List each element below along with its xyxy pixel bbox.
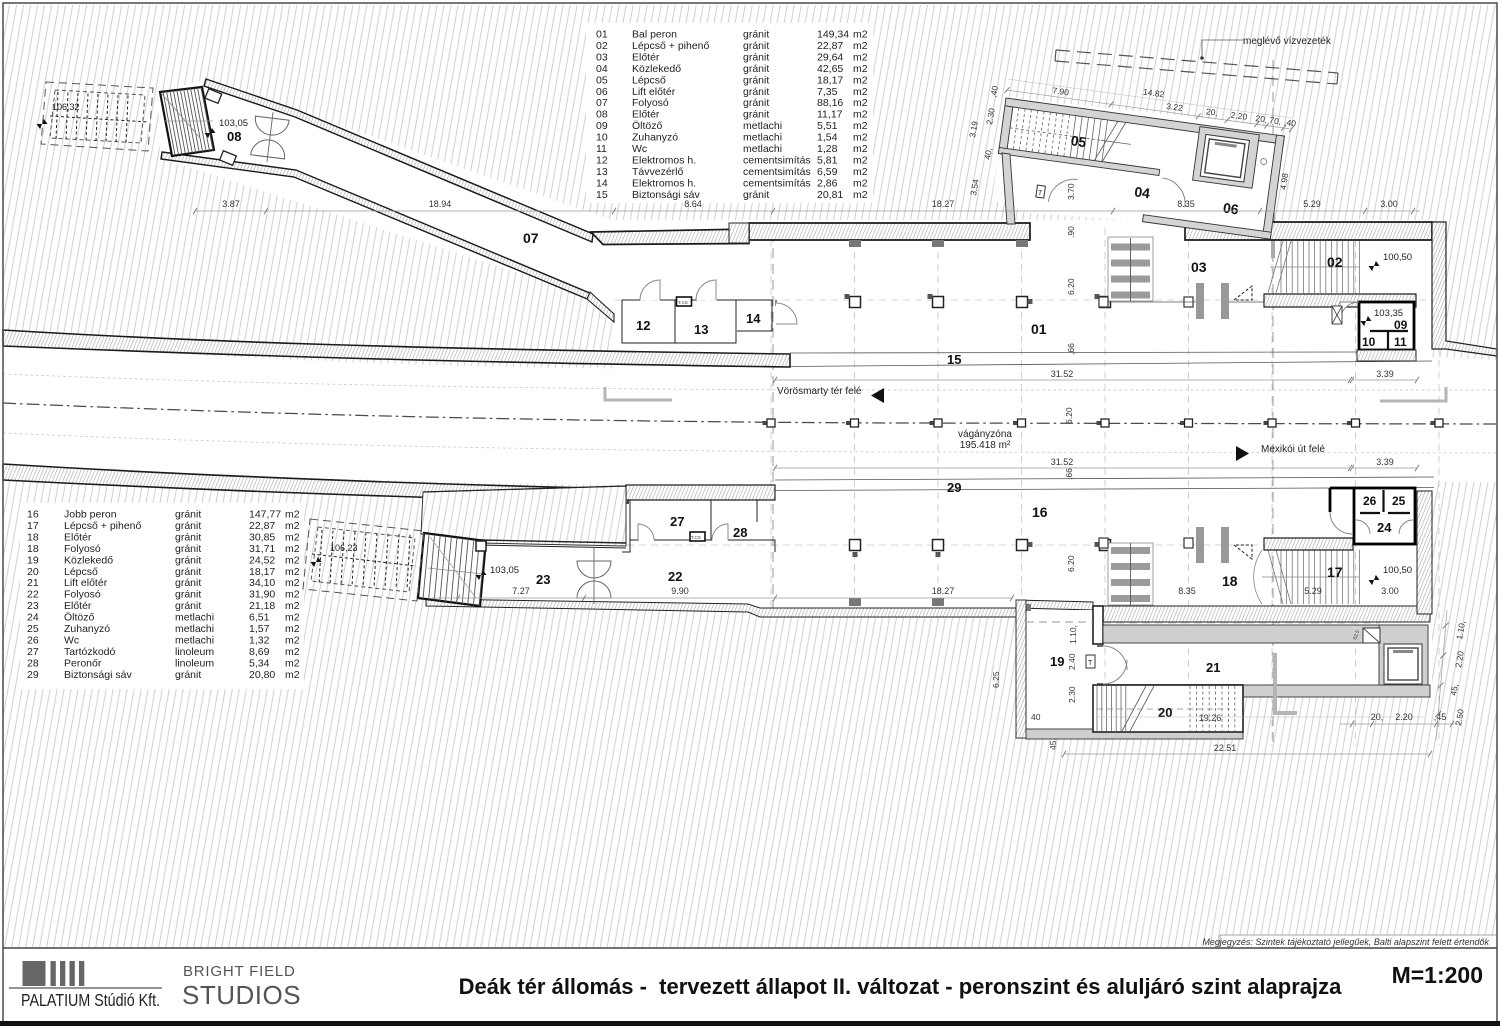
svg-text:m2: m2 (853, 120, 868, 132)
svg-text:103,05: 103,05 (490, 565, 519, 576)
svg-text:gránit: gránit (175, 669, 201, 681)
svg-text:13: 13 (596, 166, 608, 178)
svg-text:24: 24 (27, 612, 39, 624)
svg-text:gránit: gránit (175, 531, 201, 543)
svg-text:Biztonsági sáv: Biztonsági sáv (64, 669, 132, 681)
svg-text:Lépcső: Lépcső (632, 74, 666, 86)
svg-text:gránit: gránit (743, 109, 769, 121)
svg-text:21,18: 21,18 (249, 600, 275, 612)
svg-text:,40: ,40 (1284, 117, 1297, 129)
svg-text:06: 06 (596, 86, 608, 98)
svg-text:18,17: 18,17 (249, 566, 275, 578)
svg-text:,40: ,40 (988, 85, 1000, 99)
svg-text:106,32: 106,32 (52, 102, 80, 112)
svg-text:09: 09 (1394, 318, 1408, 332)
svg-text:5.29: 5.29 (1303, 199, 1321, 209)
svg-text:6.20: 6.20 (1066, 555, 1076, 572)
svg-text:6.20: 6.20 (1064, 407, 1074, 424)
svg-text:1,32: 1,32 (249, 635, 270, 647)
svg-text:05: 05 (1070, 132, 1088, 150)
svg-text:cementsimítás: cementsimítás (743, 154, 811, 166)
svg-text:22,87: 22,87 (817, 40, 843, 52)
svg-text:T: T (1088, 660, 1093, 667)
svg-text:88,16: 88,16 (817, 97, 843, 109)
svg-text:5,34: 5,34 (249, 657, 270, 669)
svg-text:195.418 m²: 195.418 m² (960, 440, 1011, 451)
svg-text:gránit: gránit (175, 520, 201, 532)
svg-text:gránit: gránit (743, 63, 769, 75)
svg-text:34,10: 34,10 (249, 577, 275, 589)
svg-text:07: 07 (523, 230, 539, 246)
svg-text:30,85: 30,85 (249, 531, 275, 543)
svg-text:28: 28 (27, 657, 39, 669)
svg-text:m2: m2 (853, 189, 868, 201)
svg-text:T.CS: T.CS (678, 300, 688, 305)
svg-text:11: 11 (596, 143, 607, 155)
svg-text:9.90: 9.90 (671, 586, 689, 596)
svg-text:gránit: gránit (743, 97, 769, 109)
svg-text:15: 15 (596, 189, 608, 201)
svg-text:m2: m2 (285, 531, 300, 543)
svg-text:Zuhanyzó: Zuhanyzó (64, 623, 110, 635)
svg-text:27: 27 (670, 514, 684, 529)
svg-text:PALATIUM Stúdió Kft.: PALATIUM Stúdió Kft. (21, 991, 160, 1011)
svg-text:Jobb peron: Jobb peron (64, 509, 117, 521)
svg-text:,66: ,66 (1064, 468, 1074, 480)
svg-text:23: 23 (27, 600, 39, 612)
svg-text:Közlekedő: Közlekedő (632, 63, 681, 75)
svg-text:Deák tér állomás - tervezett: Deák tér állomás - tervezett állapot II.… (459, 974, 1342, 999)
svg-text:,66: ,66 (1066, 343, 1076, 355)
svg-text:18: 18 (27, 531, 39, 543)
svg-text:20,: 20, (1371, 712, 1384, 722)
svg-text:28: 28 (733, 525, 747, 540)
svg-text:103,05: 103,05 (219, 118, 248, 129)
svg-text:m2: m2 (285, 623, 300, 635)
svg-text:gránit: gránit (743, 40, 769, 52)
svg-text:21: 21 (27, 577, 39, 589)
svg-text:gránit: gránit (175, 600, 201, 612)
svg-text:21: 21 (1206, 660, 1220, 675)
svg-text:14: 14 (596, 177, 608, 189)
svg-text:metlachi: metlachi (743, 120, 782, 132)
svg-text:19: 19 (27, 554, 39, 566)
svg-text:Zuhanyzó: Zuhanyzó (632, 132, 678, 144)
svg-text:26: 26 (27, 635, 39, 647)
svg-text:2.20: 2.20 (1395, 712, 1413, 722)
svg-text:20,80: 20,80 (249, 669, 275, 681)
svg-text:70,: 70, (1269, 115, 1282, 127)
svg-text:20,: 20, (1205, 106, 1218, 118)
svg-text:m2: m2 (285, 612, 300, 624)
svg-text:gránit: gránit (175, 509, 201, 521)
svg-text:31.52: 31.52 (1051, 369, 1074, 379)
svg-text:100,50: 100,50 (1383, 252, 1412, 263)
svg-text:Lift előtér: Lift előtér (632, 86, 676, 98)
svg-text:Megjegyzés: Szintek tájékoztat: Megjegyzés: Szintek tájékoztató jellegűe… (1202, 937, 1489, 947)
svg-text:cementsimítás: cementsimítás (743, 177, 811, 189)
svg-text:Közlekedő: Közlekedő (64, 554, 113, 566)
svg-text:gránit: gránit (743, 51, 769, 63)
svg-text:m2: m2 (285, 509, 300, 521)
svg-text:metlachi: metlachi (175, 612, 214, 624)
svg-text:24: 24 (1377, 520, 1392, 535)
svg-text:8.35: 8.35 (1177, 199, 1195, 209)
svg-text:31,71: 31,71 (249, 543, 275, 555)
svg-text:5,81: 5,81 (817, 154, 838, 166)
svg-text:6.20: 6.20 (1066, 278, 1076, 295)
svg-text:40: 40 (1031, 712, 1041, 722)
svg-text:3.39: 3.39 (1376, 457, 1394, 467)
svg-text:metlachi: metlachi (743, 132, 782, 144)
svg-text:7.27: 7.27 (512, 586, 530, 596)
svg-text:3.00: 3.00 (1380, 199, 1398, 209)
svg-text:Mexikói út felé: Mexikói út felé (1261, 444, 1325, 455)
svg-text:106,23: 106,23 (330, 543, 358, 553)
svg-text:m2: m2 (285, 543, 300, 555)
svg-text:gránit: gránit (743, 74, 769, 86)
svg-text:2.40: 2.40 (1067, 653, 1077, 670)
svg-text:07: 07 (596, 97, 608, 109)
svg-text:m2: m2 (285, 657, 300, 669)
svg-text:cementsimítás: cementsimítás (743, 166, 811, 178)
svg-text:Lépcső + pihenő: Lépcső + pihenő (632, 40, 710, 52)
svg-text:m2: m2 (853, 177, 868, 189)
svg-text:.90: .90 (1066, 226, 1076, 238)
svg-text:42,65: 42,65 (817, 63, 843, 75)
svg-text:m2: m2 (285, 635, 300, 647)
svg-text:m2: m2 (853, 143, 868, 155)
svg-text:3.70: 3.70 (1066, 183, 1076, 200)
svg-text:8.35: 8.35 (1178, 586, 1196, 596)
svg-text:Folyosó: Folyosó (632, 97, 669, 109)
svg-text:m2: m2 (285, 554, 300, 566)
svg-text:gránit: gránit (743, 29, 769, 41)
svg-text:m2: m2 (853, 86, 868, 98)
svg-text:m2: m2 (285, 566, 300, 578)
svg-text:Peronőr: Peronőr (64, 657, 102, 669)
svg-text:27: 27 (27, 646, 39, 658)
svg-text:22.51: 22.51 (1214, 743, 1237, 753)
svg-text:29: 29 (947, 480, 961, 495)
svg-text:11: 11 (1394, 335, 1407, 349)
svg-text:06: 06 (1222, 200, 1240, 218)
svg-text:gránit: gránit (175, 566, 201, 578)
svg-text:T.CS: T.CS (691, 535, 701, 540)
svg-text:STUDIOS: STUDIOS (182, 980, 301, 1010)
svg-text:4.98: 4.98 (1278, 172, 1290, 190)
svg-text:linoleum: linoleum (175, 646, 214, 658)
svg-text:29,64: 29,64 (817, 51, 843, 63)
svg-text:1.10,: 1.10, (1068, 625, 1078, 644)
svg-text:m2: m2 (853, 154, 868, 166)
svg-text:Folyosó: Folyosó (64, 589, 101, 601)
svg-text:Öltöző: Öltöző (64, 612, 95, 624)
svg-text:01: 01 (596, 29, 608, 41)
svg-text:6,51: 6,51 (249, 612, 270, 624)
svg-text:5,51: 5,51 (817, 120, 838, 132)
svg-text:12: 12 (636, 318, 650, 333)
svg-text:m2: m2 (853, 109, 868, 121)
svg-text:17: 17 (1327, 564, 1343, 580)
svg-text:19.26: 19.26 (1199, 713, 1222, 723)
svg-text:Előtér: Előtér (632, 51, 660, 63)
svg-text:m2: m2 (853, 132, 868, 144)
svg-text:19: 19 (1050, 654, 1064, 669)
svg-text:Wc: Wc (632, 143, 647, 155)
svg-text:m2: m2 (853, 40, 868, 52)
svg-text:12: 12 (596, 154, 608, 166)
svg-text:m2: m2 (853, 166, 868, 178)
svg-text:gránit: gránit (175, 554, 201, 566)
svg-text:gránit: gránit (175, 589, 201, 601)
svg-text:m2: m2 (853, 97, 868, 109)
svg-text:gránit: gránit (175, 577, 201, 589)
svg-text:13: 13 (694, 322, 708, 337)
svg-text:7,35: 7,35 (817, 86, 838, 98)
svg-text:20,: 20, (1255, 113, 1268, 125)
svg-text:Wc: Wc (64, 635, 79, 647)
svg-text:31.52: 31.52 (1051, 457, 1074, 467)
svg-text:5.29: 5.29 (1304, 586, 1322, 596)
svg-text:Elektromos h.: Elektromos h. (632, 154, 696, 166)
svg-text:18: 18 (1222, 573, 1238, 589)
svg-text:m2: m2 (285, 577, 300, 589)
svg-text:45,: 45, (1048, 738, 1058, 750)
svg-text:Előtér: Előtér (64, 531, 92, 543)
svg-text:3.00: 3.00 (1381, 586, 1399, 596)
svg-text:Előtér: Előtér (632, 109, 660, 121)
svg-text:linoleum: linoleum (175, 657, 214, 669)
svg-text:metlachi: metlachi (175, 635, 214, 647)
svg-text:1,54: 1,54 (817, 132, 838, 144)
svg-text:metlachi: metlachi (175, 623, 214, 635)
svg-text:Távvezérlő: Távvezérlő (632, 166, 684, 178)
svg-text:m2: m2 (853, 63, 868, 75)
svg-text:18,17: 18,17 (817, 74, 843, 86)
svg-text:02: 02 (1327, 254, 1343, 270)
svg-text:29: 29 (27, 669, 39, 681)
svg-text:m2: m2 (285, 669, 300, 681)
svg-text:10: 10 (596, 132, 608, 144)
svg-text:vágányzóna: vágányzóna (958, 429, 1012, 440)
svg-text:03: 03 (596, 51, 608, 63)
svg-text:25: 25 (27, 623, 39, 635)
svg-text:22: 22 (668, 569, 682, 584)
svg-text:m2: m2 (285, 646, 300, 658)
svg-text:Biztonsági sáv: Biztonsági sáv (632, 189, 700, 201)
svg-text:16: 16 (1032, 504, 1048, 520)
svg-text:20,81: 20,81 (817, 189, 843, 201)
svg-text:18.27: 18.27 (932, 199, 955, 209)
svg-text:02: 02 (596, 40, 608, 52)
svg-text:16: 16 (27, 509, 39, 521)
svg-text:metlachi: metlachi (743, 143, 782, 155)
svg-text:3.39: 3.39 (1376, 369, 1394, 379)
svg-text:23: 23 (536, 572, 550, 587)
svg-text:gránit: gránit (175, 543, 201, 555)
svg-text:14: 14 (746, 311, 761, 326)
svg-text:20: 20 (1158, 705, 1172, 720)
svg-text:11,17: 11,17 (817, 109, 843, 121)
svg-text:05: 05 (596, 74, 608, 86)
svg-text:gránit: gránit (743, 189, 769, 201)
svg-text:m2: m2 (285, 589, 300, 601)
svg-text:Lift előtér: Lift előtér (64, 577, 108, 589)
svg-text:04: 04 (1133, 183, 1151, 201)
svg-text:2.30: 2.30 (1067, 686, 1077, 703)
svg-text:04: 04 (596, 63, 608, 75)
svg-text:147,77: 147,77 (249, 509, 281, 521)
svg-text:01: 01 (1031, 321, 1047, 337)
svg-text:20: 20 (27, 566, 39, 578)
svg-text:17: 17 (27, 520, 39, 532)
svg-text:6,59: 6,59 (817, 166, 838, 178)
svg-text:31,90: 31,90 (249, 589, 275, 601)
svg-text:08: 08 (596, 109, 608, 121)
svg-text:gránit: gránit (743, 86, 769, 98)
svg-text:6.25: 6.25 (991, 671, 1001, 688)
svg-text:m2: m2 (285, 600, 300, 612)
svg-text:18.94: 18.94 (429, 199, 452, 209)
svg-text:m2: m2 (853, 51, 868, 63)
svg-text:25: 25 (1392, 494, 1406, 508)
svg-text:18: 18 (27, 543, 39, 555)
svg-text:100,50: 100,50 (1383, 565, 1412, 576)
svg-text:22,87: 22,87 (249, 520, 275, 532)
svg-text:22: 22 (27, 589, 39, 601)
svg-text:3.87: 3.87 (222, 199, 240, 209)
svg-text:Folyosó: Folyosó (64, 543, 101, 555)
svg-text:m2: m2 (285, 520, 300, 532)
svg-text:Öltöző: Öltöző (632, 120, 663, 132)
svg-text:149,34: 149,34 (817, 29, 849, 41)
svg-text:Lépcső + pihenő: Lépcső + pihenő (64, 520, 142, 532)
svg-text:03: 03 (1191, 259, 1207, 275)
svg-text:8,69: 8,69 (249, 646, 270, 658)
svg-text:09: 09 (596, 120, 608, 132)
svg-text:Bal peron: Bal peron (632, 29, 677, 41)
svg-text:meglévő vízvezeték: meglévő vízvezeték (1243, 36, 1332, 47)
svg-text:Elektromos h.: Elektromos h. (632, 177, 696, 189)
svg-text:Előtér: Előtér (64, 600, 92, 612)
svg-text:1,28: 1,28 (817, 143, 838, 155)
svg-text:18.27: 18.27 (932, 586, 955, 596)
svg-text:M=1:200: M=1:200 (1392, 962, 1483, 988)
svg-text:Tartózkodó: Tartózkodó (64, 646, 116, 658)
svg-text:BRIGHT FIELD: BRIGHT FIELD (183, 963, 296, 980)
svg-text:26: 26 (1363, 494, 1377, 508)
svg-text:45,: 45, (1448, 683, 1460, 696)
svg-text:15: 15 (947, 352, 961, 367)
svg-text:40,: 40, (982, 147, 994, 160)
svg-text:10: 10 (1362, 335, 1376, 349)
svg-text:m2: m2 (853, 29, 868, 41)
svg-text:Lépcső: Lépcső (64, 566, 98, 578)
svg-text:m2: m2 (853, 74, 868, 86)
svg-text:1,57: 1,57 (249, 623, 270, 635)
svg-text:Vörösmarty tér felé: Vörösmarty tér felé (777, 386, 862, 397)
svg-text:24,52: 24,52 (249, 554, 275, 566)
svg-text:2,86: 2,86 (817, 177, 838, 189)
svg-text:08: 08 (227, 129, 241, 144)
